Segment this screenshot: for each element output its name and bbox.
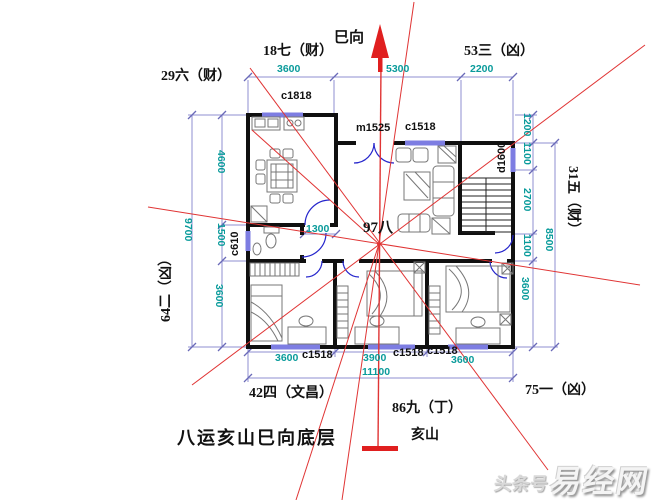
dim-top-3: 2200: [470, 64, 493, 75]
entry-door-left-leaf: [354, 143, 374, 163]
kitchen-door: [305, 200, 330, 225]
bedroom3-window-label: c1518: [427, 346, 458, 357]
floorplan-canvas: 巳向 亥山 97八 18七（财） 29六（财） 53三（凶） 31五（财） 64…: [0, 0, 667, 500]
facing-label: 巳向: [334, 30, 364, 47]
dim-right-3: 2700: [522, 188, 533, 211]
sector-bottom: 86九（丁）: [392, 401, 462, 416]
page-title: 八运亥山巳向底层: [177, 429, 337, 449]
bathroom-fixtures: [253, 227, 279, 255]
bedroom1-door: [306, 261, 322, 277]
dim-left-3: 3600: [214, 284, 225, 307]
sector-bottom-left: 42四（文昌）: [249, 386, 333, 401]
dim-left-1: 4600: [216, 150, 227, 173]
sector-top-left: 29六（财）: [161, 69, 231, 84]
dim-bottom-total: 11100: [362, 367, 390, 378]
sector-bottom-right: 75一（凶）: [525, 383, 595, 398]
living-room-furniture: [396, 146, 456, 234]
bath-door: [302, 233, 326, 257]
watermark-prefix: 头条号: [493, 470, 550, 496]
floor-plan-drawing: [0, 0, 667, 500]
dim-right-total: 8500: [544, 228, 555, 251]
bedroom3-furniture: [429, 263, 513, 344]
dim-top-2: 5300: [386, 64, 409, 75]
watermark-brand: 易经网: [547, 456, 654, 500]
sector-top: 18七（财）: [263, 44, 333, 59]
sitting-label: 亥山: [411, 428, 439, 443]
center-star: 97八: [363, 220, 393, 237]
living-window-label: c1518: [405, 122, 436, 133]
stair-hall-door: [495, 235, 513, 253]
sector-top-right: 53三（凶）: [464, 44, 534, 59]
bath-window-label: c610: [230, 232, 241, 256]
dim-hall: 1300: [306, 224, 329, 235]
dim-right-1: 1200: [522, 113, 533, 136]
bedroom1-window-label: c1518: [302, 350, 333, 361]
sitting-mark-icon: [362, 446, 398, 451]
door-arcs: [302, 143, 513, 278]
sector-right: 31五（财）: [565, 166, 580, 236]
stair-window-label: d1600: [497, 142, 508, 173]
bedroom2-window-label: c1518: [393, 348, 424, 359]
kitchen-window-label: c1818: [281, 91, 312, 102]
dim-right-5: 3600: [520, 277, 531, 300]
dim-bottom-2: 3900: [363, 353, 386, 364]
dim-top-1: 3600: [277, 64, 300, 75]
stairs: [462, 178, 511, 232]
bedroom2-door: [343, 261, 359, 277]
sector-left: 64二（凶）: [159, 252, 174, 322]
dim-left-2: 1500: [216, 223, 227, 246]
dim-right-2: 1100: [522, 142, 533, 165]
dim-bottom-1: 3600: [275, 353, 298, 364]
dim-right-4: 1100: [522, 234, 533, 257]
dim-left-total: 9700: [183, 218, 194, 241]
entry-door-label: m1525: [356, 123, 390, 134]
plan-center-point: [377, 242, 381, 246]
